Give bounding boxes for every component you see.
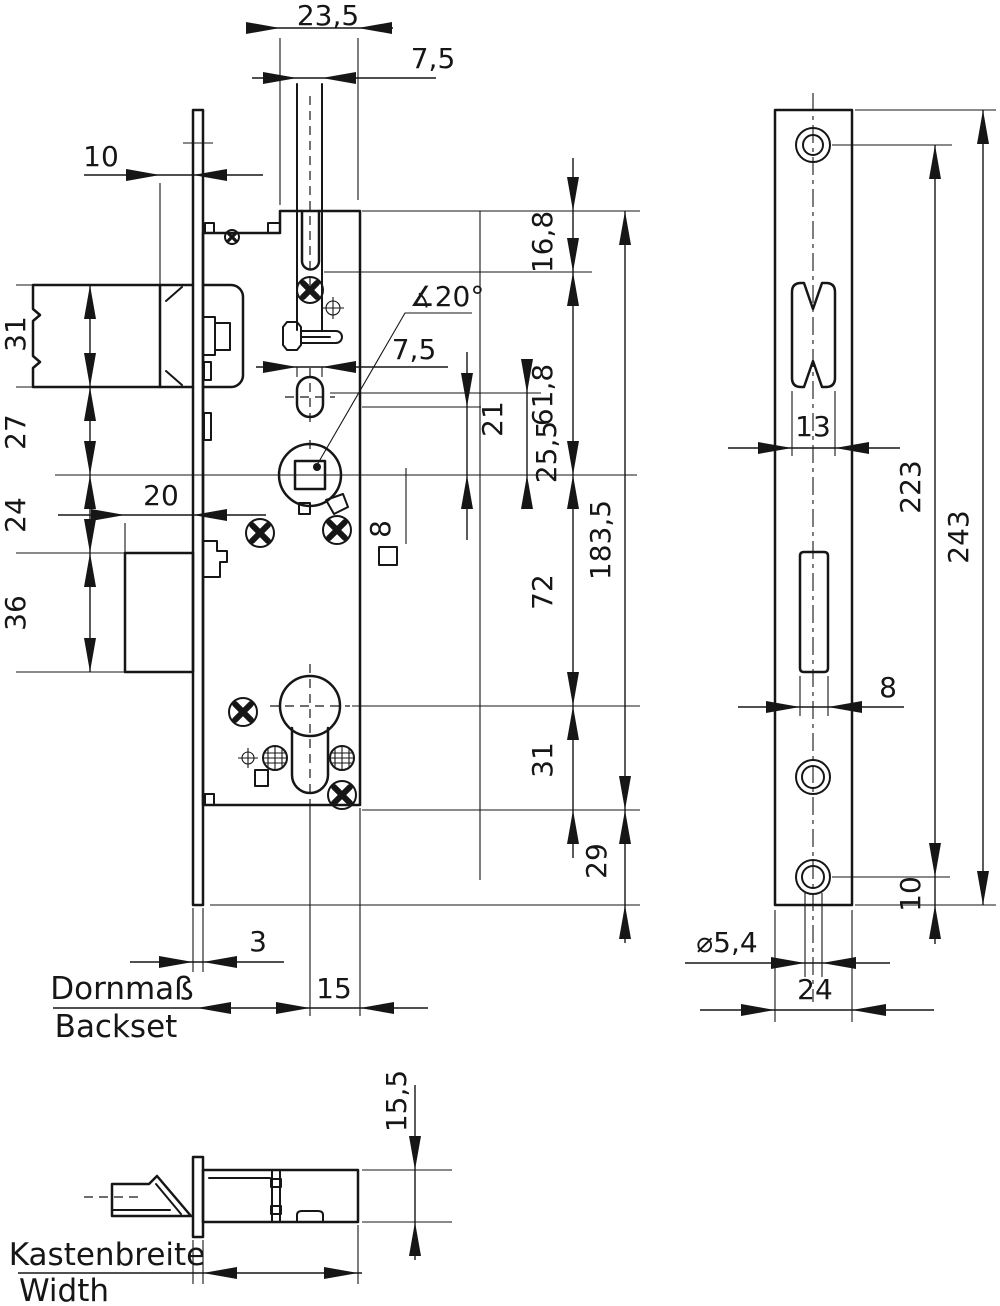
dim-10: 10 [83, 140, 119, 173]
dim-24-left: 24 [0, 497, 32, 533]
dim-61-8: 61,8 [526, 364, 559, 426]
dim-24-plate: 24 [797, 973, 833, 1006]
dim-31-right: 31 [526, 742, 559, 778]
side-case [203, 1170, 358, 1222]
dim-16-8: 16,8 [526, 211, 559, 273]
dim-8: 8 [879, 671, 897, 704]
dim-15-5: 15,5 [380, 1070, 413, 1132]
oval-hole [285, 368, 335, 426]
spindle-follower [279, 440, 348, 514]
cylinder-hole [270, 664, 350, 800]
front-view-lock-body [33, 84, 360, 905]
dim-15: 15 [316, 972, 352, 1005]
dim-36: 36 [0, 595, 32, 631]
dim-243: 243 [942, 510, 975, 563]
dim-23-5: 23,5 [297, 0, 359, 32]
dim-72: 72 [526, 574, 559, 610]
dim-20: 20 [143, 479, 179, 512]
dim-21: 21 [476, 401, 509, 437]
label-dornmass: Dornmaß [50, 971, 193, 1007]
dim-3: 3 [249, 925, 267, 958]
lock-technical-drawing: 23,5 7,5 10 31 27 24 36 20 ∡20° 7,5 [0, 0, 1000, 1306]
deadbolt [125, 541, 227, 672]
label-kastenbreite: Kastenbreite [9, 1237, 205, 1273]
dim-dia-5-4: ⌀5,4 [696, 926, 757, 959]
dim-13: 13 [795, 410, 831, 443]
side-faceplate [193, 1157, 203, 1237]
dim-25-5: 25,5 [530, 421, 563, 483]
dim-7-5-mid: 7,5 [392, 333, 437, 366]
front-faceplate [183, 110, 213, 905]
side-view: 15,5 Kastenbreite Width [9, 1070, 452, 1306]
dim-7-5-top: 7,5 [411, 42, 456, 75]
dim-27: 27 [0, 414, 32, 450]
dim-angle-20: ∡20° [410, 280, 485, 313]
label-width: Width [19, 1273, 109, 1306]
drawing-sheet: 23,5 7,5 10 31 27 24 36 20 ∡20° 7,5 [0, 0, 1000, 1306]
dim-10-plate: 10 [894, 876, 927, 912]
dim-square-8: 8 [364, 520, 397, 538]
dim-31-left: 31 [0, 316, 32, 352]
side-latch-bolt [84, 1176, 191, 1216]
front-view-dimensions: 23,5 7,5 10 31 27 24 36 20 ∡20° 7,5 [0, 0, 640, 1045]
dim-183-5: 183,5 [584, 500, 617, 580]
lever-pin [283, 322, 342, 350]
dim-29: 29 [580, 843, 613, 879]
label-backset: Backset [55, 1009, 178, 1045]
faceplate-view: 13 8 ⌀5,4 24 223 10 243 [685, 93, 996, 1022]
dim-223: 223 [894, 460, 927, 513]
deadbolt-slot [800, 552, 828, 672]
